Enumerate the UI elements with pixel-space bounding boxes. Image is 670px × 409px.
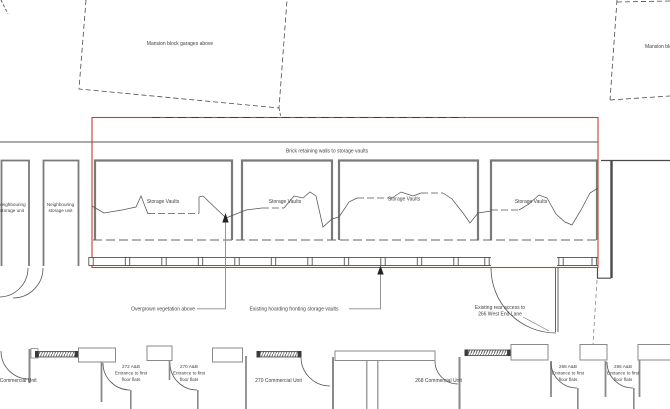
unit-label-266ab: floor flats bbox=[614, 377, 633, 382]
glazing-cap bbox=[35, 351, 39, 358]
neighbouring-unit-label: Neighbouring bbox=[0, 202, 26, 207]
entrance-block bbox=[147, 346, 172, 361]
glazing-cap bbox=[75, 351, 79, 358]
rear-access-label-1: Existing rear access to bbox=[475, 305, 526, 311]
shop-pier bbox=[638, 345, 670, 361]
annotation-hoarding: Existing hoarding fronting storage vault… bbox=[250, 266, 384, 313]
annotation-rear-access: Existing rear access to 266 West End Lan… bbox=[475, 305, 549, 331]
right-building-dashed-link bbox=[593, 280, 597, 344]
unit-label-268-commercial: 268 Commercial Unit bbox=[415, 378, 462, 384]
hoarding-label: Existing hoarding fronting storage vault… bbox=[250, 307, 339, 313]
glazing-cap bbox=[465, 350, 469, 357]
site-plan-page: Mansion block garages above Mansion bloc… bbox=[0, 0, 670, 409]
neighbouring-unit-box bbox=[2, 161, 30, 267]
mansion-right-outline-left bbox=[610, 0, 617, 100]
hoarding bbox=[89, 258, 598, 334]
shop-pier bbox=[213, 348, 243, 362]
passage-walls bbox=[367, 361, 378, 409]
unit-label-272ab: Entrance to first bbox=[115, 371, 148, 376]
red-boundary-rect bbox=[92, 118, 598, 268]
mansion-right-outline-bottom bbox=[610, 96, 670, 100]
street-frontage: 272 Commercial Unit 272 A&B Entrance to … bbox=[0, 345, 670, 409]
glazing-cap bbox=[508, 350, 512, 357]
unit-label-270-commercial: 270 Commercial Unit bbox=[255, 378, 302, 384]
mansion-right-label: Mansion block bbox=[645, 44, 670, 50]
door-swing-arc bbox=[301, 357, 330, 386]
shop-pier bbox=[79, 348, 116, 362]
rear-access-label-2: 266 West End Lane bbox=[478, 312, 522, 318]
vault-label: Storage Vaults bbox=[147, 199, 180, 205]
right-building-wall-return bbox=[597, 268, 611, 278]
rear-access-leader bbox=[523, 317, 549, 331]
shop-pier bbox=[511, 345, 548, 361]
unit-label-272ab: floor flats bbox=[122, 377, 141, 382]
mansion-left-outline-tail bbox=[279, 108, 281, 118]
site-plan-drawing: Mansion block garages above Mansion bloc… bbox=[0, 0, 670, 409]
neighbouring-unit-label: Neighbouring bbox=[47, 202, 75, 207]
neighbouring-unit-box bbox=[44, 161, 79, 267]
unit-label-266ab: Entrance to first bbox=[607, 371, 640, 376]
shopfront-glazing bbox=[468, 350, 508, 356]
unit-label-266ab: 266 A&B bbox=[614, 364, 632, 369]
hoarding-leader bbox=[349, 274, 381, 309]
overgrown-arrow bbox=[222, 213, 228, 223]
party-wall-beam bbox=[335, 351, 435, 361]
mansion-block-left: Mansion block garages above bbox=[79, 0, 287, 118]
mansion-left-label: Mansion block garages above bbox=[147, 41, 214, 47]
door-swing-arc bbox=[1, 351, 29, 379]
unit-label-268ab: floor flats bbox=[559, 377, 578, 382]
boundary-dash-stub bbox=[1, 0, 8, 14]
unit-label-270ab: floor flats bbox=[180, 377, 199, 382]
vault-label: Storage Vaults bbox=[269, 199, 302, 205]
unit-label-270ab: Entrance to first bbox=[173, 371, 206, 376]
hoarding-arrow bbox=[377, 266, 383, 275]
neighbouring-unit-label: storage unit bbox=[0, 208, 25, 213]
mansion-left-outline bbox=[79, 0, 287, 108]
mansion-right-outline-top bbox=[617, 1, 670, 2]
hoarding-posts bbox=[89, 258, 597, 266]
glazing-cap bbox=[257, 351, 261, 358]
unit-label-268ab: Entrance to first bbox=[552, 371, 585, 376]
neighbouring-unit-label: storage unit bbox=[48, 208, 73, 213]
unit-label-272ab: 272 A&B bbox=[122, 364, 140, 369]
brick-retaining-label: Brick retaining walls to storage vaults bbox=[286, 149, 369, 155]
storage-vaults: Storage Vaults Storage Vaults Storage Va… bbox=[95, 161, 597, 241]
unit-label-270ab: 270 A&B bbox=[180, 364, 198, 369]
unit-label-268ab: 268 A&B bbox=[559, 364, 577, 369]
neighbouring-units: Neighbouring storage unit Neighbouring s… bbox=[0, 161, 79, 299]
gate-swing-arc bbox=[491, 268, 556, 333]
door-swing-arc bbox=[0, 268, 28, 297]
glazing-cap bbox=[298, 351, 302, 358]
shopfront-glazing bbox=[260, 352, 298, 358]
overgrown-label: Overgrown vegetation above bbox=[131, 307, 195, 313]
gate-leaf bbox=[556, 268, 559, 332]
unit-label-272-commercial: 272 Commercial Unit bbox=[0, 378, 37, 384]
entrance-block bbox=[580, 345, 607, 361]
vault-ground-profile bbox=[92, 188, 598, 227]
mansion-block-right: Mansion block bbox=[610, 0, 670, 100]
right-building bbox=[593, 160, 670, 344]
annotation-overgrown: Overgrown vegetation above bbox=[131, 213, 229, 313]
shopfront-glazing bbox=[39, 352, 76, 358]
